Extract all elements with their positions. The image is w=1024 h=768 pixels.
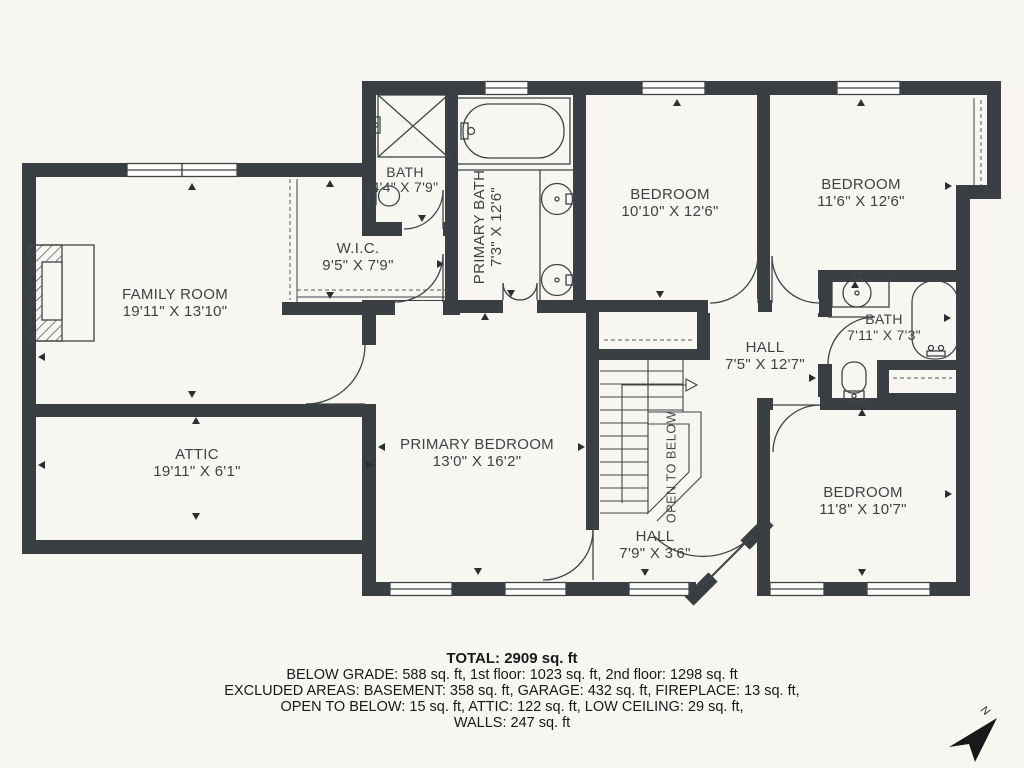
shower-icon [372,95,448,157]
room-label-attic: ATTIC 19'11" X 6'1" [153,446,241,480]
fireplace-icon [29,245,94,341]
room-label-primary-bedroom: PRIMARY BEDROOM 13'0" X 16'2" [400,436,554,470]
fixtures [29,95,981,401]
door [710,255,758,303]
room-label-hall-upper: HALL 7'5" X 12'7" [725,339,805,373]
room-dims: 13'0" X 16'2" [400,453,554,470]
room-name: FAMILY ROOM [122,286,228,303]
window [505,583,566,596]
window [867,583,930,596]
area-summary: TOTAL: 2909 sq. ft BELOW GRADE: 588 sq. … [0,651,1024,731]
room-label-bedroom-bottom: BEDROOM 11'8" X 10'7" [819,484,907,518]
room-name: PRIMARY BEDROOM [400,436,554,453]
room-name: HALL [725,339,805,356]
room-dims: 10'10" X 12'6" [621,203,718,220]
door [773,405,820,452]
sink-icon [542,184,575,215]
window [127,164,182,177]
bathtub-icon [457,98,570,164]
room-dims: 11'6" X 12'6" [817,193,905,210]
room-label-bath-right: BATH 7'11" X 7'3" [847,311,921,343]
door [543,530,593,580]
room-dims: 7'11" X 7'3" [847,327,921,343]
open-to-below-label: OPEN TO BELOW [664,411,681,523]
room-label-hall-lower: HALL 7'9" X 3'6" [619,528,690,562]
room-dims: 9'5" X 7'9" [322,257,393,274]
room-label-wic: W.I.C. 9'5" X 7'9" [322,240,393,274]
window [629,583,689,596]
room-dims: 19'11" X 13'10" [122,303,228,320]
door [772,256,819,303]
summary-line: EXCLUDED AREAS: BASEMENT: 358 sq. ft, GA… [0,683,1024,699]
room-dims: 7'5" X 12'7" [725,356,805,373]
room-label-bath-small: BATH 4'4" X 7'9" [372,165,439,195]
room-name: BEDROOM [819,484,907,501]
room-name: HALL [619,528,690,545]
room-label-bedroom-top-right: BEDROOM 11'6" X 12'6" [817,176,905,210]
room-dims: 7'3" X 12'6" [488,170,505,284]
room-dims: 7'9" X 3'6" [619,545,690,562]
window [642,82,705,95]
window [770,583,824,596]
toilet-icon [842,362,866,401]
window [837,82,900,95]
room-label-bedroom-top-mid: BEDROOM 10'10" X 12'6" [621,186,718,220]
room-label-family-room: FAMILY ROOM 19'11" X 13'10" [122,286,228,320]
summary-line: WALLS: 247 sq. ft [0,715,1024,731]
summary-line: BELOW GRADE: 588 sq. ft, 1st floor: 1023… [0,667,1024,683]
room-name: PRIMARY BATH [471,170,488,284]
window [182,164,237,177]
door [306,345,365,404]
room-name: W.I.C. [322,240,393,257]
window [485,82,528,95]
stairs-icon [600,360,701,521]
summary-line: OPEN TO BELOW: 15 sq. ft, ATTIC: 122 sq.… [0,699,1024,715]
door [395,254,443,302]
room-dims: 11'8" X 10'7" [819,501,907,518]
room-label-primary-bath: PRIMARY BATH 7'3" X 12'6" [471,170,505,284]
room-name: BEDROOM [621,186,718,203]
room-name: BATH [372,165,439,180]
sink-icon [542,265,575,296]
floor-plan-page: FAMILY ROOM 19'11" X 13'10" ATTIC 19'11"… [0,0,1024,768]
summary-total: TOTAL: 2909 sq. ft [0,651,1024,667]
room-name: ATTIC [153,446,241,463]
window [390,583,452,596]
room-name: BEDROOM [817,176,905,193]
room-name: BATH [847,311,921,327]
door [520,283,537,300]
room-dims: 4'4" X 7'9" [372,180,439,195]
room-dims: 19'11" X 6'1" [153,463,241,480]
